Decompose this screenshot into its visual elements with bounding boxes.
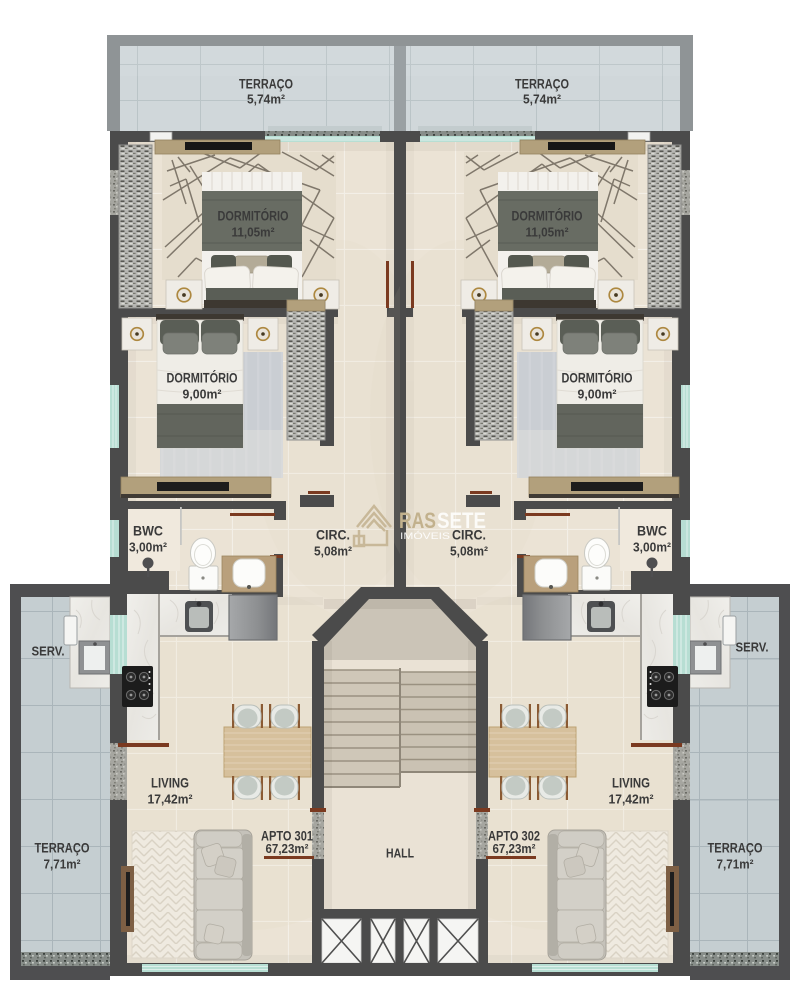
svg-text:RAS: RAS <box>399 508 436 533</box>
svg-text:TERRAÇO: TERRAÇO <box>35 841 90 856</box>
svg-text:HALL: HALL <box>386 847 414 861</box>
svg-text:11,05m²: 11,05m² <box>232 225 276 240</box>
svg-text:BWC: BWC <box>637 524 667 539</box>
svg-text:7,71m²: 7,71m² <box>44 857 82 872</box>
svg-text:9,00m²: 9,00m² <box>183 387 223 402</box>
svg-text:SETE: SETE <box>437 508 486 533</box>
svg-text:SERV.: SERV. <box>736 641 769 655</box>
svg-text:3,00m²: 3,00m² <box>129 540 168 555</box>
svg-text:5,74m²: 5,74m² <box>523 92 562 107</box>
svg-text:5,74m²: 5,74m² <box>247 92 286 107</box>
svg-text:DORMITÓRIO: DORMITÓRIO <box>512 209 583 224</box>
svg-text:9,00m²: 9,00m² <box>578 387 618 402</box>
svg-text:5,08m²: 5,08m² <box>450 544 489 559</box>
svg-text:IMÓVEIS: IMÓVEIS <box>400 531 450 541</box>
svg-text:TERRAÇO: TERRAÇO <box>515 77 569 92</box>
svg-text:LIVING: LIVING <box>151 776 189 791</box>
svg-text:67,23m²: 67,23m² <box>266 841 310 856</box>
svg-text:DORMITÓRIO: DORMITÓRIO <box>562 371 633 386</box>
svg-text:7,71m²: 7,71m² <box>717 857 755 872</box>
svg-text:17,42m²: 17,42m² <box>148 792 194 807</box>
svg-text:SERV.: SERV. <box>32 645 65 659</box>
svg-text:TERRAÇO: TERRAÇO <box>708 841 763 856</box>
svg-text:DORMITÓRIO: DORMITÓRIO <box>167 371 238 386</box>
svg-text:LIVING: LIVING <box>612 776 650 791</box>
svg-text:TERRAÇO: TERRAÇO <box>239 77 293 92</box>
svg-text:17,42m²: 17,42m² <box>609 792 655 807</box>
svg-text:3,00m²: 3,00m² <box>633 540 672 555</box>
svg-text:5,08m²: 5,08m² <box>314 544 353 559</box>
svg-text:67,23m²: 67,23m² <box>493 841 537 856</box>
svg-text:BWC: BWC <box>133 524 163 539</box>
svg-text:11,05m²: 11,05m² <box>526 225 570 240</box>
svg-text:DORMITÓRIO: DORMITÓRIO <box>218 209 289 224</box>
svg-text:CIRC.: CIRC. <box>316 528 350 543</box>
